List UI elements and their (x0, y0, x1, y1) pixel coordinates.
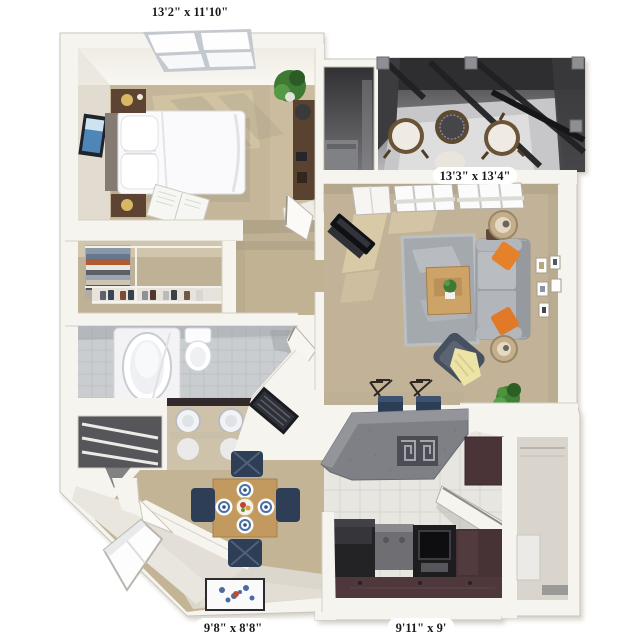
svg-text:9'8" x 8'8": 9'8" x 8'8" (204, 621, 262, 635)
svg-text:9'11" x 9': 9'11" x 9' (396, 621, 447, 635)
svg-text:13'2" x 11'10": 13'2" x 11'10" (152, 5, 228, 19)
svg-text:13'3" x 13'4": 13'3" x 13'4" (440, 169, 511, 183)
